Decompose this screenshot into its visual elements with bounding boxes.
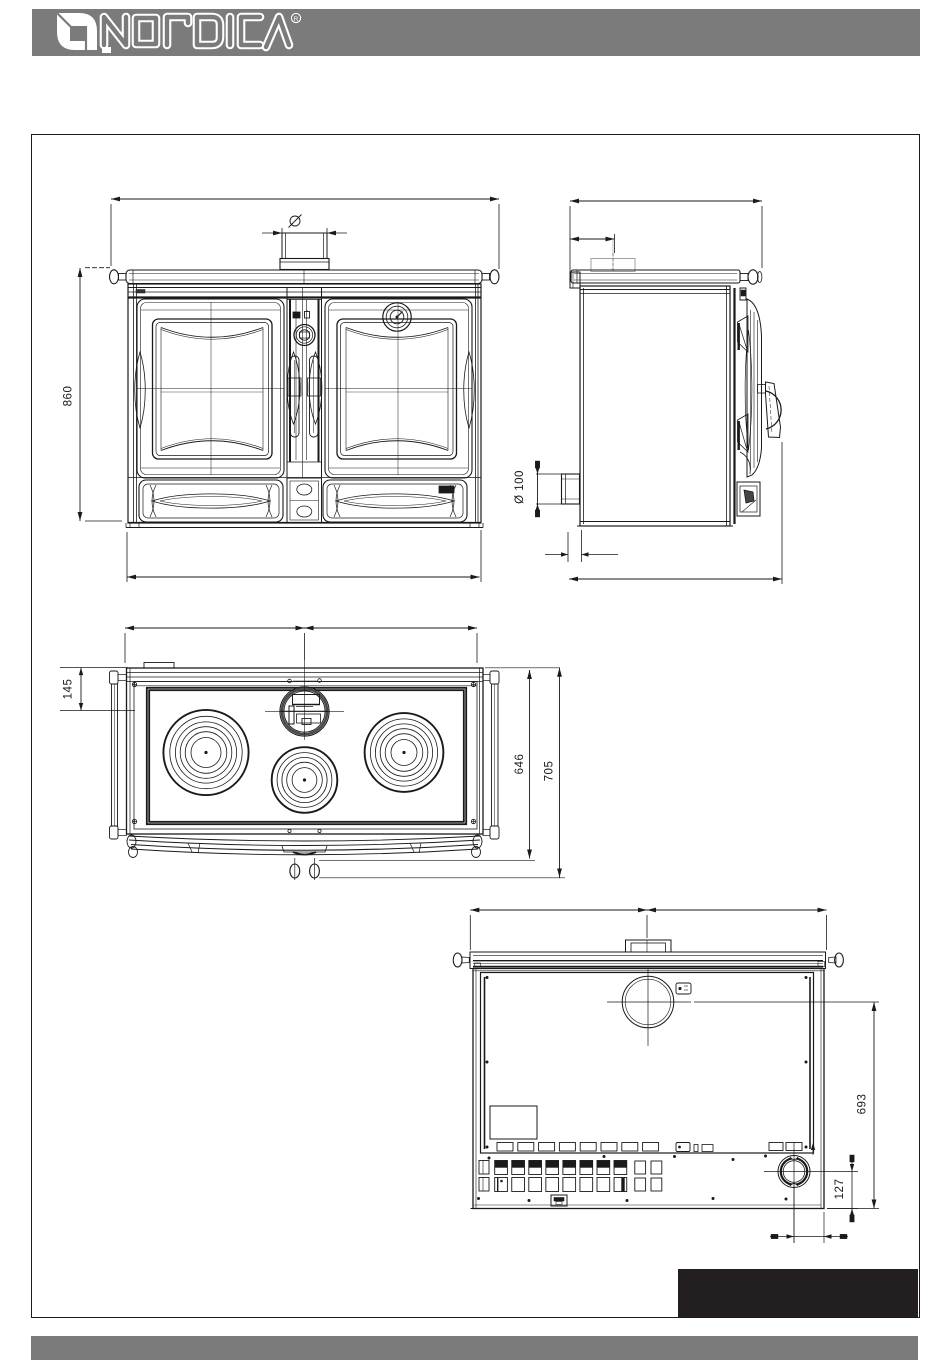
svg-text:646: 646 (514, 754, 526, 775)
svg-text:860: 860 (63, 386, 75, 407)
svg-text:127: 127 (834, 1179, 846, 1200)
svg-text:693: 693 (857, 1094, 869, 1115)
svg-text:Ø 100: Ø 100 (514, 470, 526, 504)
svg-text:145: 145 (63, 679, 75, 700)
svg-text:705: 705 (544, 761, 556, 782)
